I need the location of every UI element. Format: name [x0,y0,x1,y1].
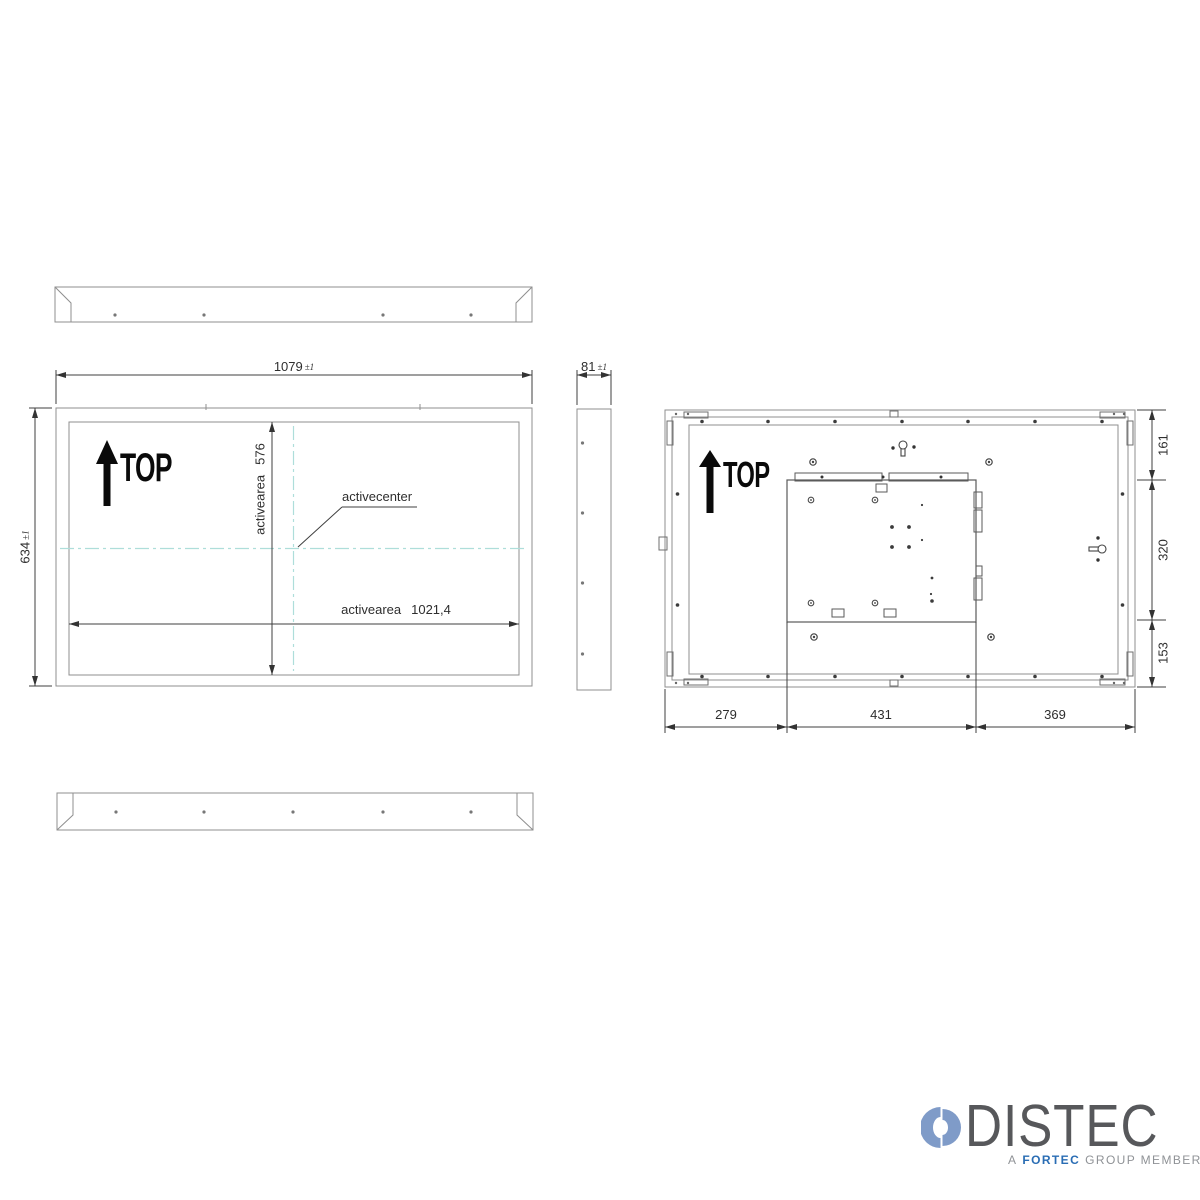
rear-electronics-plate [787,480,982,622]
bottom-view [57,793,533,830]
rear-frame-details [659,411,1133,686]
active-height-value: 576 [253,443,268,465]
dim-front-height: 634±1 [19,530,32,563]
dim-front-width-value: 1079 [274,359,303,374]
subline-suffix: GROUP MEMBER [1085,1153,1200,1167]
dim-active-width: activearea1021,4 [341,603,451,616]
dim-side-width: 81±1 [581,360,607,373]
side-view [577,409,611,690]
dim-active-height: activearea576 [254,443,267,535]
dim-rear-right-161: 161 [1157,434,1170,456]
dim-front-width: 1079±1 [274,360,314,373]
keyhole-right-icon [1089,536,1106,561]
dim-side-width-tol: ±1 [598,362,607,372]
brand-wordmark: DISTEC [965,1097,1158,1156]
drawing-linework [0,0,1200,1200]
dim-front-height-value: 634 [18,542,33,564]
rear-top-arrow-icon [699,450,721,513]
rear-cover-ring-holes [810,459,994,640]
technical-drawing-page: 1079±1 81±1 634±1 activearea576 activece… [0,0,1200,1200]
keyhole-top-icon [891,441,915,456]
active-width-value: 1021,4 [411,602,451,617]
distec-logo-icon [921,1105,965,1151]
dimension-lines [29,370,1166,733]
brand-subline: AFORTECGROUP MEMBER [1008,1154,1200,1166]
active-width-label: activearea [341,602,401,617]
dim-rear-bottom-279: 279 [715,708,737,721]
dim-rear-right-153: 153 [1157,642,1170,664]
dim-rear-bottom-369: 369 [1044,708,1066,721]
subline-prefix: A [1008,1153,1017,1167]
top-view [55,287,532,322]
active-center-label: activecenter [342,490,412,503]
dim-side-width-value: 81 [581,359,595,374]
front-top-label: TOP [120,448,172,488]
distec-logo: DISTEC AFORTECGROUP MEMBER [918,1090,1188,1175]
front-top-arrow-icon [96,440,118,506]
subline-fortec: FORTEC [1022,1153,1080,1167]
rear-view [665,410,1135,687]
dim-rear-bottom-431: 431 [870,708,892,721]
dimension-arrowheads [32,372,1155,730]
dim-front-height-tol: ±1 [21,530,31,539]
dim-rear-right-320: 320 [1157,539,1170,561]
active-height-label: activearea [253,475,268,535]
dim-front-width-tol: ±1 [305,362,314,372]
rear-top-label: TOP [723,457,769,493]
